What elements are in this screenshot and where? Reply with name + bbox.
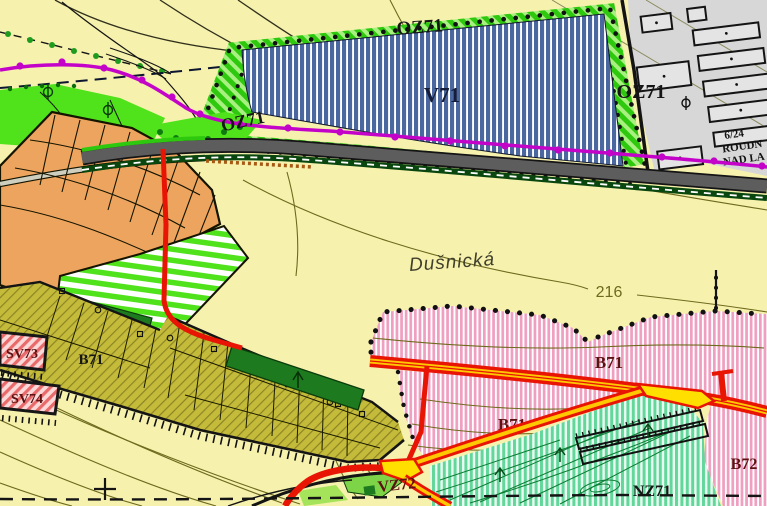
label-oz71-right: OZ71 xyxy=(617,81,666,103)
label-nz71: NZ71 xyxy=(633,483,671,500)
label-sv73: SV73 xyxy=(6,347,38,362)
label-contour-216: 216 xyxy=(596,284,623,301)
label-b72: B72 xyxy=(731,456,758,473)
label-v71: V71 xyxy=(424,83,460,107)
label-oz71-top: OZ71 xyxy=(396,15,444,39)
map-canvas[interactable]: 6/24 ROUDN NAD LA xyxy=(0,0,767,506)
map-viewport: 6/24 ROUDN NAD LA xyxy=(0,0,767,506)
label-sv74: SV74 xyxy=(11,392,43,407)
label-b71-upper: B71 xyxy=(595,353,623,372)
label-b71-olive: B71 xyxy=(78,352,103,368)
